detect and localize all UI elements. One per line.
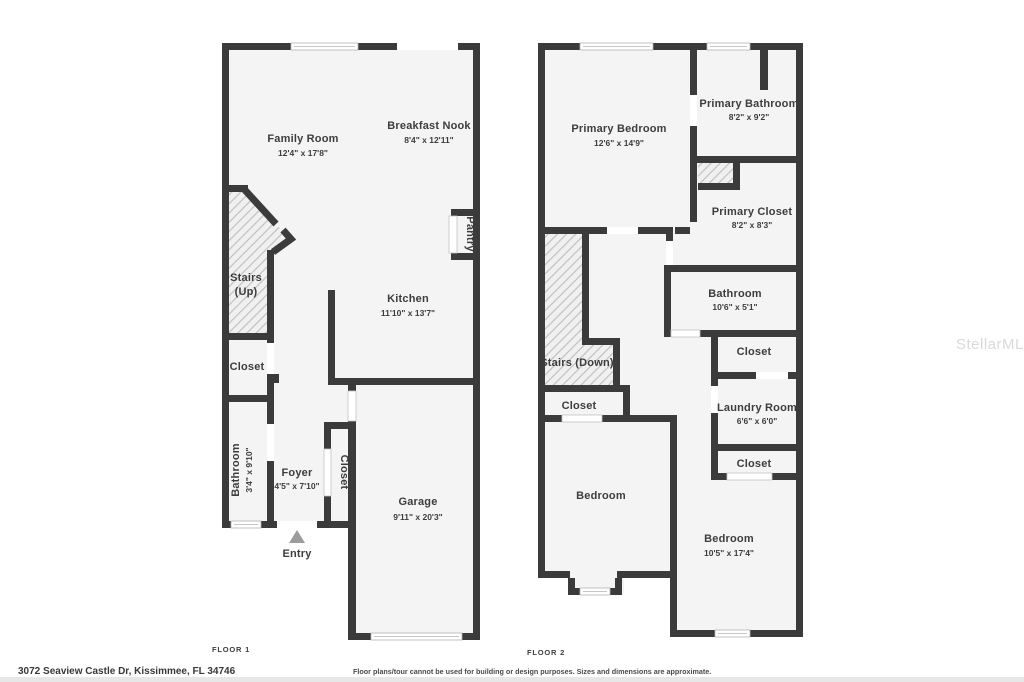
bathroom-f2-door [671, 330, 700, 337]
svg-text:Family Room: Family Room [267, 133, 338, 145]
svg-text:Laundry Room: Laundry Room [717, 402, 797, 414]
svg-text:Bedroom: Bedroom [704, 533, 754, 545]
primary-bathroom-window [707, 43, 750, 50]
svg-text:Primary Bedroom: Primary Bedroom [571, 123, 666, 135]
floor-plan-canvas: Family Room 12'4" x 17'8" Breakfast Nook… [0, 0, 1024, 682]
entry-arrow-icon [289, 530, 305, 543]
svg-text:Foyer: Foyer [282, 467, 313, 479]
closet-upper-door [756, 372, 788, 379]
property-address: 3072 Seaview Castle Dr, Kissimmee, FL 34… [18, 666, 236, 677]
svg-text:Kitchen: Kitchen [387, 293, 429, 305]
bathroom-window [231, 521, 261, 528]
family-room-window [291, 43, 358, 50]
svg-text:Bathroom: Bathroom [230, 443, 242, 497]
room-label-closet-f1: Closet [230, 361, 265, 373]
room-label-closet-mid: Closet [562, 400, 597, 412]
primary-bathroom-door [690, 95, 697, 126]
foyer-closet-door [324, 449, 331, 496]
bedroom-left-door [562, 415, 602, 422]
entry-door-opening [277, 521, 317, 528]
floor1-plan: Family Room 12'4" x 17'8" Breakfast Nook… [222, 43, 480, 640]
room-label-bedroom-left: Bedroom [576, 490, 626, 502]
primary-bedroom-window [580, 43, 653, 50]
garage-door [371, 633, 462, 640]
svg-text:Bathroom: Bathroom [708, 288, 762, 300]
room-label-stairs-down: Stairs (Down) [540, 357, 614, 369]
svg-text:6'6" x 6'0": 6'6" x 6'0" [737, 416, 777, 426]
floor1-caption: FLOOR 1 [212, 645, 250, 654]
svg-text:12'4" x 17'8": 12'4" x 17'8" [278, 148, 328, 158]
bedroom-left-window [580, 588, 610, 595]
svg-text:12'6" x 14'9": 12'6" x 14'9" [594, 138, 644, 148]
footer-strip [0, 677, 1024, 682]
stellar-mls-watermark: StellarMLS [956, 336, 1024, 353]
svg-text:3'4" x 9'10": 3'4" x 9'10" [244, 447, 254, 492]
svg-text:10'6" x 5'1": 10'6" x 5'1" [712, 302, 757, 312]
svg-text:Primary Closet: Primary Closet [712, 206, 793, 218]
svg-text:Stairs: Stairs [230, 272, 262, 284]
room-label-closet-foyer: Closet [338, 455, 350, 490]
svg-text:8'2" x 9'2": 8'2" x 9'2" [729, 112, 769, 122]
svg-text:(Up): (Up) [235, 286, 258, 298]
svg-text:9'11" x 20'3": 9'11" x 20'3" [393, 512, 442, 522]
room-label-closet-lower: Closet [737, 458, 772, 470]
entry-label: Entry [282, 548, 312, 560]
svg-text:Breakfast Nook: Breakfast Nook [387, 120, 471, 132]
floor2-caption: FLOOR 2 [527, 648, 565, 657]
bathroom-door [267, 424, 274, 461]
svg-text:8'2" x 8'3": 8'2" x 8'3" [732, 220, 772, 230]
bedroom-right-window [715, 630, 750, 637]
closet-lower-door [727, 473, 772, 480]
svg-text:10'5" x 17'4": 10'5" x 17'4" [704, 548, 754, 558]
svg-text:4'5" x 7'10": 4'5" x 7'10" [274, 481, 319, 491]
breakfast-nook-opening [397, 43, 458, 50]
closet-door [267, 343, 274, 374]
primary-bedroom-door [607, 227, 638, 234]
svg-text:Primary Bathroom: Primary Bathroom [699, 98, 798, 110]
floor-plan-page: Family Room 12'4" x 17'8" Breakfast Nook… [0, 0, 1024, 682]
svg-text:8'4" x 12'11": 8'4" x 12'11" [404, 135, 453, 145]
room-label-closet-upper: Closet [737, 346, 772, 358]
room-label-pantry: Pantry [464, 216, 476, 252]
primary-bathroom-closet-hatch [698, 163, 733, 183]
disclaimer-text: Floor plans/tour cannot be used for buil… [353, 667, 711, 676]
svg-text:11'10" x 13'7": 11'10" x 13'7" [381, 308, 435, 318]
hall-door-opening [666, 241, 673, 265]
garage-entry-door [348, 391, 356, 421]
svg-text:Garage: Garage [398, 496, 437, 508]
floor2-plan: Primary Bedroom 12'6" x 14'9" Primary Ba… [538, 43, 803, 637]
pantry-door [449, 216, 457, 253]
